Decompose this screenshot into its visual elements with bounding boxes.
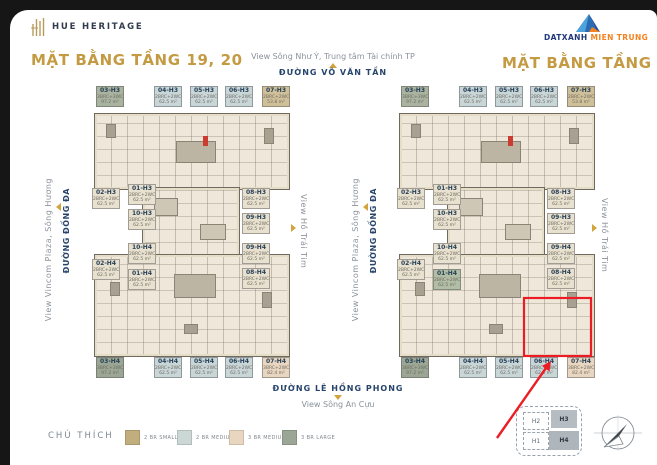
minimap-block-h4: H4 [549, 431, 579, 450]
minimap-block-h3: H3 [551, 410, 577, 428]
unit-chip-01-H3: 01-H32BRC+2WC62.5 m² [128, 184, 156, 205]
unit-chip-10-H3: 10-H32BRC+2WC62.5 m² [433, 209, 461, 230]
plan-red-marker [508, 136, 513, 146]
arrow-left-icon-plan2 [363, 203, 368, 211]
unit-chip-07-H4: 07-H43BRC+2WC82.4 m² [567, 357, 595, 378]
left-view-label-plan2: View Vincom Plaza, Sông Hương [351, 178, 360, 321]
legend-item: 3 BR MEDIUM [229, 430, 286, 445]
legend-swatch-2br-medium [177, 430, 192, 445]
unit-chip-04-H4: 04-H42BRC+2WC62.5 m² [459, 357, 487, 378]
unit-chip-01-H4: 01-H42BRC+2WC62.5 m² [433, 269, 461, 290]
left-street-label-plan1: ĐƯỜNG ĐỐNG ĐA [62, 188, 71, 273]
right-plan-title: MẶT BẰNG TẦNG 21 [502, 54, 657, 72]
brand-name: HUE HERITAGE [52, 22, 144, 32]
left-view-label-plan1: View Vincom Plaza, Sông Hương [44, 178, 53, 321]
developer-name-secondary: MIEN TRUNG [591, 33, 649, 42]
developer-name: DATXANH MIEN TRUNG [544, 33, 632, 42]
unit-chip-02-H4: 02-H42BRC+2WC62.5 m² [92, 259, 120, 280]
unit-chip-01-H3: 01-H32BRC+2WC62.5 m² [433, 184, 461, 205]
unit-chip-09-H3: 09-H32BRC+2WC62.5 m² [242, 213, 270, 234]
unit-chip-07-H3: 07-H32BRC+2WC53.8 m² [567, 86, 595, 107]
bottom-street-label: ĐƯỜNG LÊ HỒNG PHONG [258, 384, 418, 393]
legend-swatch-3br-large [282, 430, 297, 445]
unit-chip-03-H4: 03-H43BRC+3WC97.2 m² [401, 357, 429, 378]
unit-chip-03-H3: 03-H33BRC+3WC97.2 m² [401, 86, 429, 107]
unit-chip-06-H4: 06-H42BRC+2WC62.5 m² [530, 357, 558, 378]
minimap-block-h1: H1 [523, 432, 549, 450]
legend-item: 3 BR LARGE [282, 430, 335, 445]
unit-chip-10-H4: 10-H42BRC+2WC62.5 m² [433, 243, 461, 264]
unit-chip-03-H3: 03-H33BRC+3WC97.2 m² [96, 86, 124, 107]
right-view-label-plan1: View Hồ Trái Tim [299, 194, 308, 268]
floorplan-21: 03-H33BRC+3WC97.2 m²04-H32BRC+2WC62.5 m²… [393, 86, 605, 386]
unit-chip-07-H3: 07-H32BRC+2WC53.8 m² [262, 86, 290, 107]
unit-chip-10-H4: 10-H42BRC+2WC62.5 m² [128, 243, 156, 264]
top-street-label: ĐƯỜNG VÕ VĂN TẦN [253, 68, 413, 77]
hue-heritage-logo-icon [31, 17, 46, 37]
unit-chip-04-H3: 04-H32BRC+2WC62.5 m² [459, 86, 487, 107]
unit-chip-07-H4: 07-H43BRC+2WC82.4 m² [262, 357, 290, 378]
legend-item: 2 BR SMALL [125, 430, 178, 445]
datxanh-logo-icon [575, 13, 601, 33]
unit-chip-02-H3: 02-H32BRC+2WC62.5 m² [92, 188, 120, 209]
unit-chip-09-H4: 09-H42BRC+2WC62.5 m² [547, 243, 575, 264]
unit-chip-05-H3: 05-H32BRC+2WC62.5 m² [190, 86, 218, 107]
unit-chip-06-H3: 06-H32BRC+2WC62.5 m² [225, 86, 253, 107]
left-street-label-plan2: ĐƯỜNG ĐỐNG ĐA [369, 188, 378, 273]
legend-title: CHÚ THÍCH [48, 431, 114, 441]
compass-icon [594, 411, 642, 455]
unit-chip-09-H3: 09-H32BRC+2WC62.5 m² [547, 213, 575, 234]
site-minimap: H2 H3 H1 H4 [516, 406, 582, 456]
plan-red-marker [203, 136, 208, 146]
unit-chip-03-H4: 03-H43BRC+3WC97.2 m² [96, 357, 124, 378]
brand-logo: HUE HERITAGE [31, 17, 144, 37]
legend-swatch-2br-small [125, 430, 140, 445]
unit-chip-04-H3: 04-H32BRC+2WC62.5 m² [154, 86, 182, 107]
unit-chip-06-H3: 06-H32BRC+2WC62.5 m² [530, 86, 558, 107]
developer-name-primary: DATXANH [544, 33, 588, 42]
unit-chip-04-H4: 04-H42BRC+2WC62.5 m² [154, 357, 182, 378]
top-view-label: View Sông Như Ý, Trung tâm Tài chính TP [233, 52, 433, 61]
legend-item: 2 BR MEDIUM [177, 430, 234, 445]
legend-swatch-3br-medium [229, 430, 244, 445]
developer-logo: DATXANH MIEN TRUNG [544, 13, 632, 42]
unit-chip-08-H3: 08-H32BRC+2WC62.5 m² [242, 188, 270, 209]
unit-chip-01-H4: 01-H42BRC+2WC62.5 m² [128, 269, 156, 290]
bottom-view-label: View Sông An Cựu [268, 400, 408, 409]
minimap-block-h2: H2 [523, 412, 549, 430]
legend-label: 2 BR SMALL [144, 435, 178, 441]
unit-chip-02-H3: 02-H32BRC+2WC62.5 m² [397, 188, 425, 209]
unit-chip-02-H4: 02-H42BRC+2WC62.5 m² [397, 259, 425, 280]
arrow-left-icon-plan1 [56, 203, 61, 211]
left-plan-title: MẶT BẰNG TẦNG 19, 20 [31, 51, 243, 69]
unit-chip-05-H4: 05-H42BRC+2WC62.5 m² [190, 357, 218, 378]
unit-chip-09-H4: 09-H42BRC+2WC62.5 m² [242, 243, 270, 264]
legend-label: 3 BR LARGE [301, 435, 335, 441]
unit-chip-08-H4: 08-H42BRC+2WC62.5 m² [547, 268, 575, 289]
unit-chip-05-H4: 05-H42BRC+2WC62.5 m² [495, 357, 523, 378]
floorplan-19-20: 03-H33BRC+3WC97.2 m²04-H32BRC+2WC62.5 m²… [88, 86, 300, 386]
legend-label: 3 BR MEDIUM [248, 435, 286, 441]
unit-chip-06-H4: 06-H42BRC+2WC62.5 m² [225, 357, 253, 378]
unit-chip-05-H3: 05-H32BRC+2WC62.5 m² [495, 86, 523, 107]
unit-chip-08-H4: 08-H42BRC+2WC62.5 m² [242, 268, 270, 289]
unit-chip-10-H3: 10-H32BRC+2WC62.5 m² [128, 209, 156, 230]
unit-chip-08-H3: 08-H32BRC+2WC62.5 m² [547, 188, 575, 209]
